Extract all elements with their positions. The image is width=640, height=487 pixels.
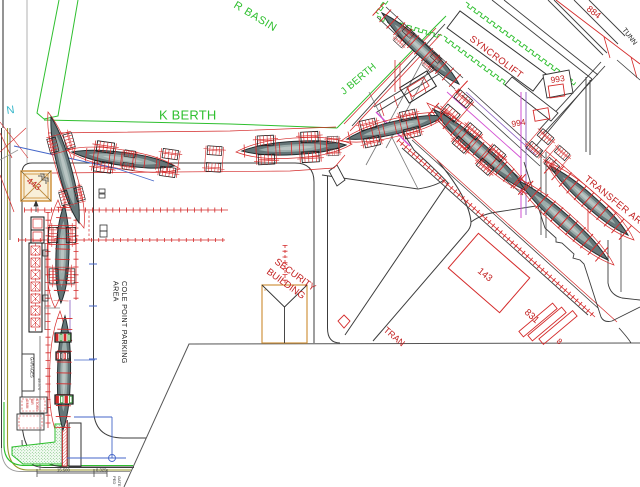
svg-text:8.325: 8.325 bbox=[96, 468, 107, 473]
svg-text:GARAGES: GARAGES bbox=[30, 357, 35, 378]
svg-text:15.500: 15.500 bbox=[57, 468, 70, 473]
svg-text:49.370: 49.370 bbox=[37, 378, 42, 391]
svg-text:AIR: AIR bbox=[30, 399, 34, 405]
svg-text:GATE: GATE bbox=[117, 476, 122, 487]
svg-text:K BERTH: K BERTH bbox=[159, 108, 217, 123]
svg-text:993: 993 bbox=[550, 73, 566, 85]
svg-text:40MM: 40MM bbox=[25, 399, 29, 409]
svg-text:STORE: STORE bbox=[35, 399, 39, 411]
svg-text:PED: PED bbox=[112, 476, 117, 484]
